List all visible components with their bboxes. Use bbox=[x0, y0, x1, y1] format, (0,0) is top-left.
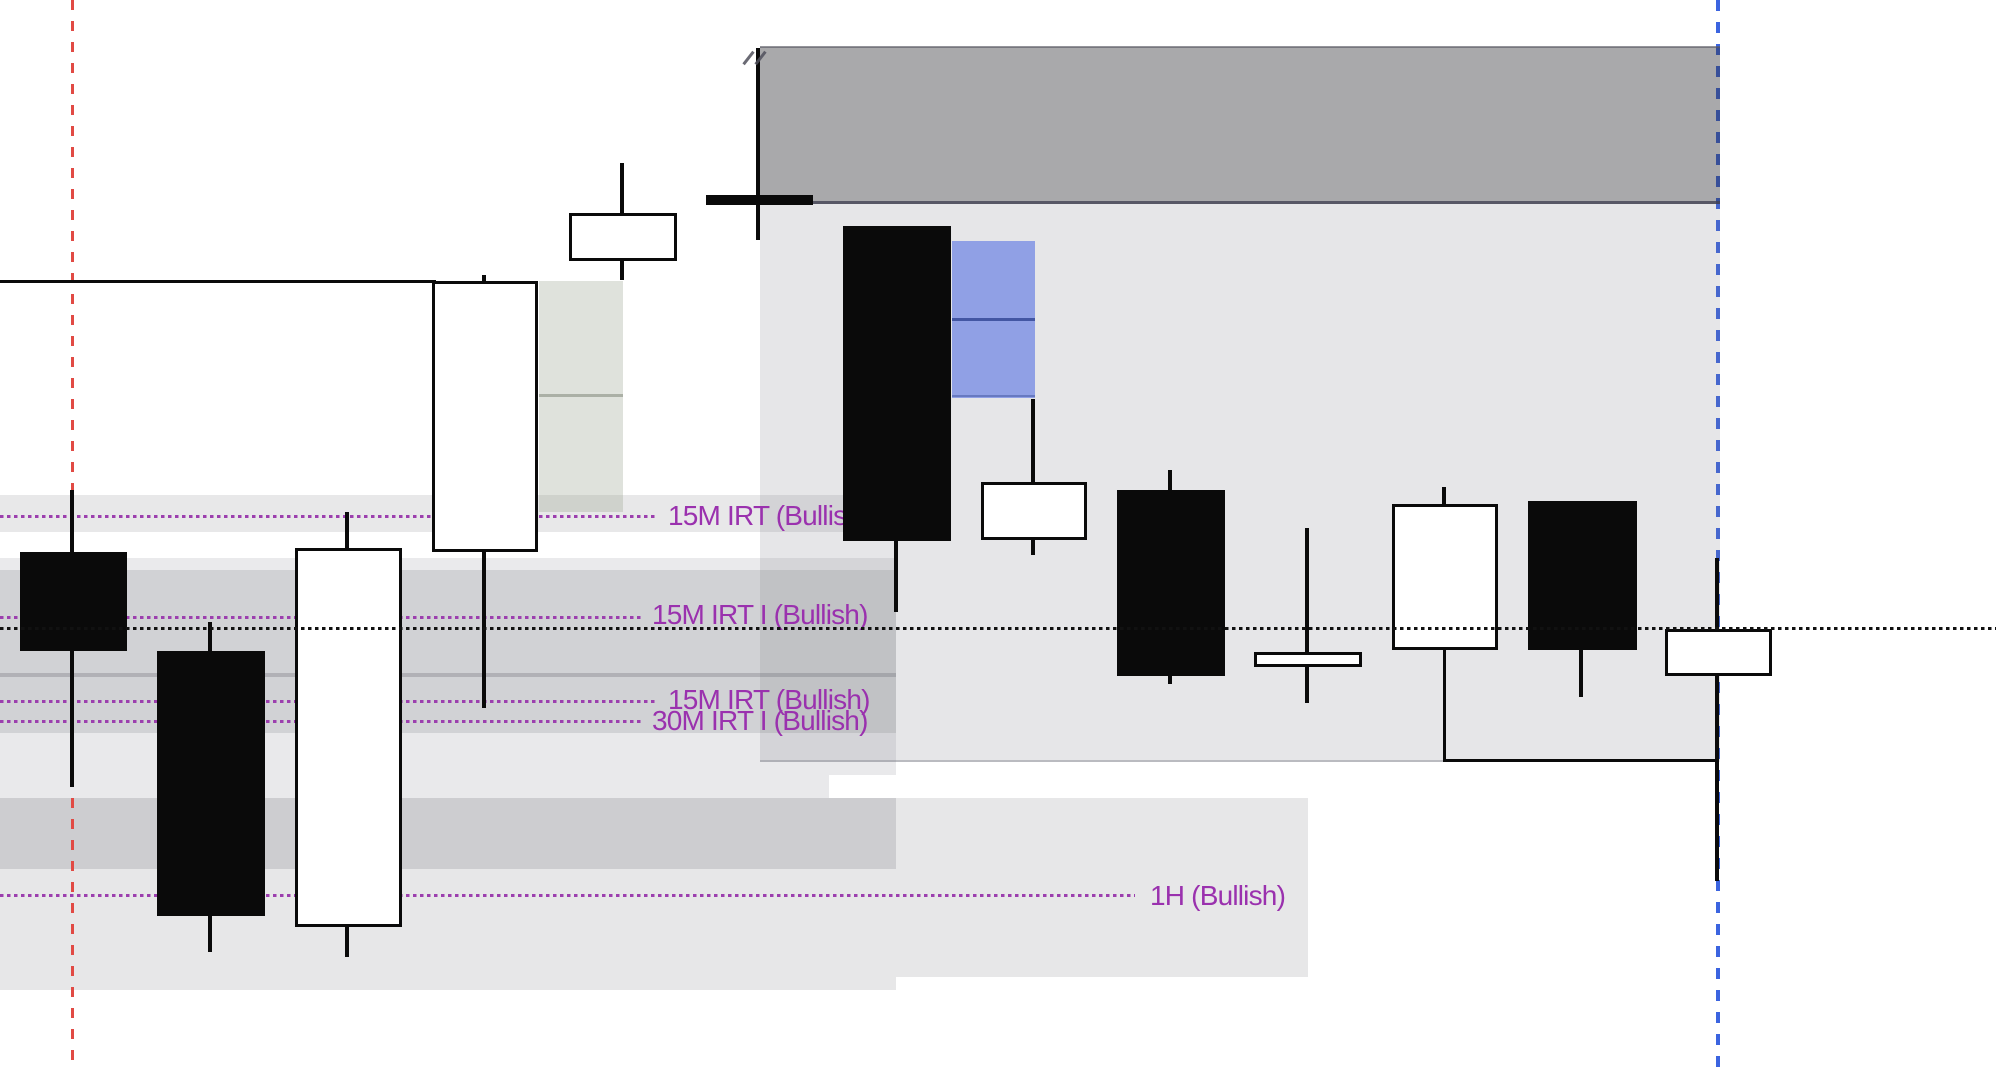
band-1h-inner[interactable] bbox=[0, 798, 896, 869]
fvg-green-gray-divider[interactable] bbox=[539, 394, 623, 397]
band-upper-divider[interactable] bbox=[0, 673, 896, 677]
candle-13-wick bbox=[1715, 558, 1719, 881]
candle-1-body bbox=[20, 552, 127, 651]
supply-box-dark[interactable] bbox=[760, 47, 1720, 204]
candle-7-body bbox=[843, 226, 951, 541]
anchor-mark-0 bbox=[742, 51, 754, 65]
candle-4-body bbox=[432, 281, 538, 552]
irt-label-3[interactable]: 30M IRT I (Bullish) bbox=[652, 707, 868, 735]
band-mid-a[interactable] bbox=[0, 733, 896, 775]
fvg-blue-divider[interactable] bbox=[952, 318, 1035, 321]
candle-13-body bbox=[1665, 629, 1772, 676]
candle-2-body bbox=[157, 651, 265, 916]
candle-9-body bbox=[1117, 490, 1225, 676]
open-level-line[interactable] bbox=[0, 280, 436, 283]
breakout-path-horizontal[interactable] bbox=[1443, 759, 1719, 762]
band-1h-tail[interactable] bbox=[0, 977, 896, 990]
irt-line-0[interactable] bbox=[0, 515, 656, 518]
irt-label-4[interactable]: 1H (Bullish) bbox=[1150, 882, 1285, 910]
candle-8-body bbox=[981, 482, 1087, 540]
chart-canvas[interactable]: 15M IRT (Bullish)15M IRT I (Bullish)15M … bbox=[0, 0, 1996, 1068]
fvg-blue-bot-edge[interactable] bbox=[952, 395, 1035, 397]
candle-10-wick bbox=[1305, 528, 1309, 703]
band-mid-b[interactable] bbox=[0, 775, 829, 798]
irt-label-1[interactable]: 15M IRT I (Bullish) bbox=[652, 601, 868, 629]
breakout-path-vertical[interactable] bbox=[1443, 650, 1446, 762]
candle-6-body bbox=[706, 195, 813, 205]
equilibrium-dotted-line[interactable] bbox=[0, 627, 1996, 630]
irt-label-0[interactable]: 15M IRT (Bullish) bbox=[668, 502, 870, 530]
candle-6-wick bbox=[756, 48, 760, 240]
supply-box-dark-top-edge[interactable] bbox=[760, 46, 1720, 48]
candle-3-body bbox=[295, 548, 402, 927]
candle-5-body bbox=[569, 213, 677, 261]
candle-10-body bbox=[1254, 652, 1362, 667]
